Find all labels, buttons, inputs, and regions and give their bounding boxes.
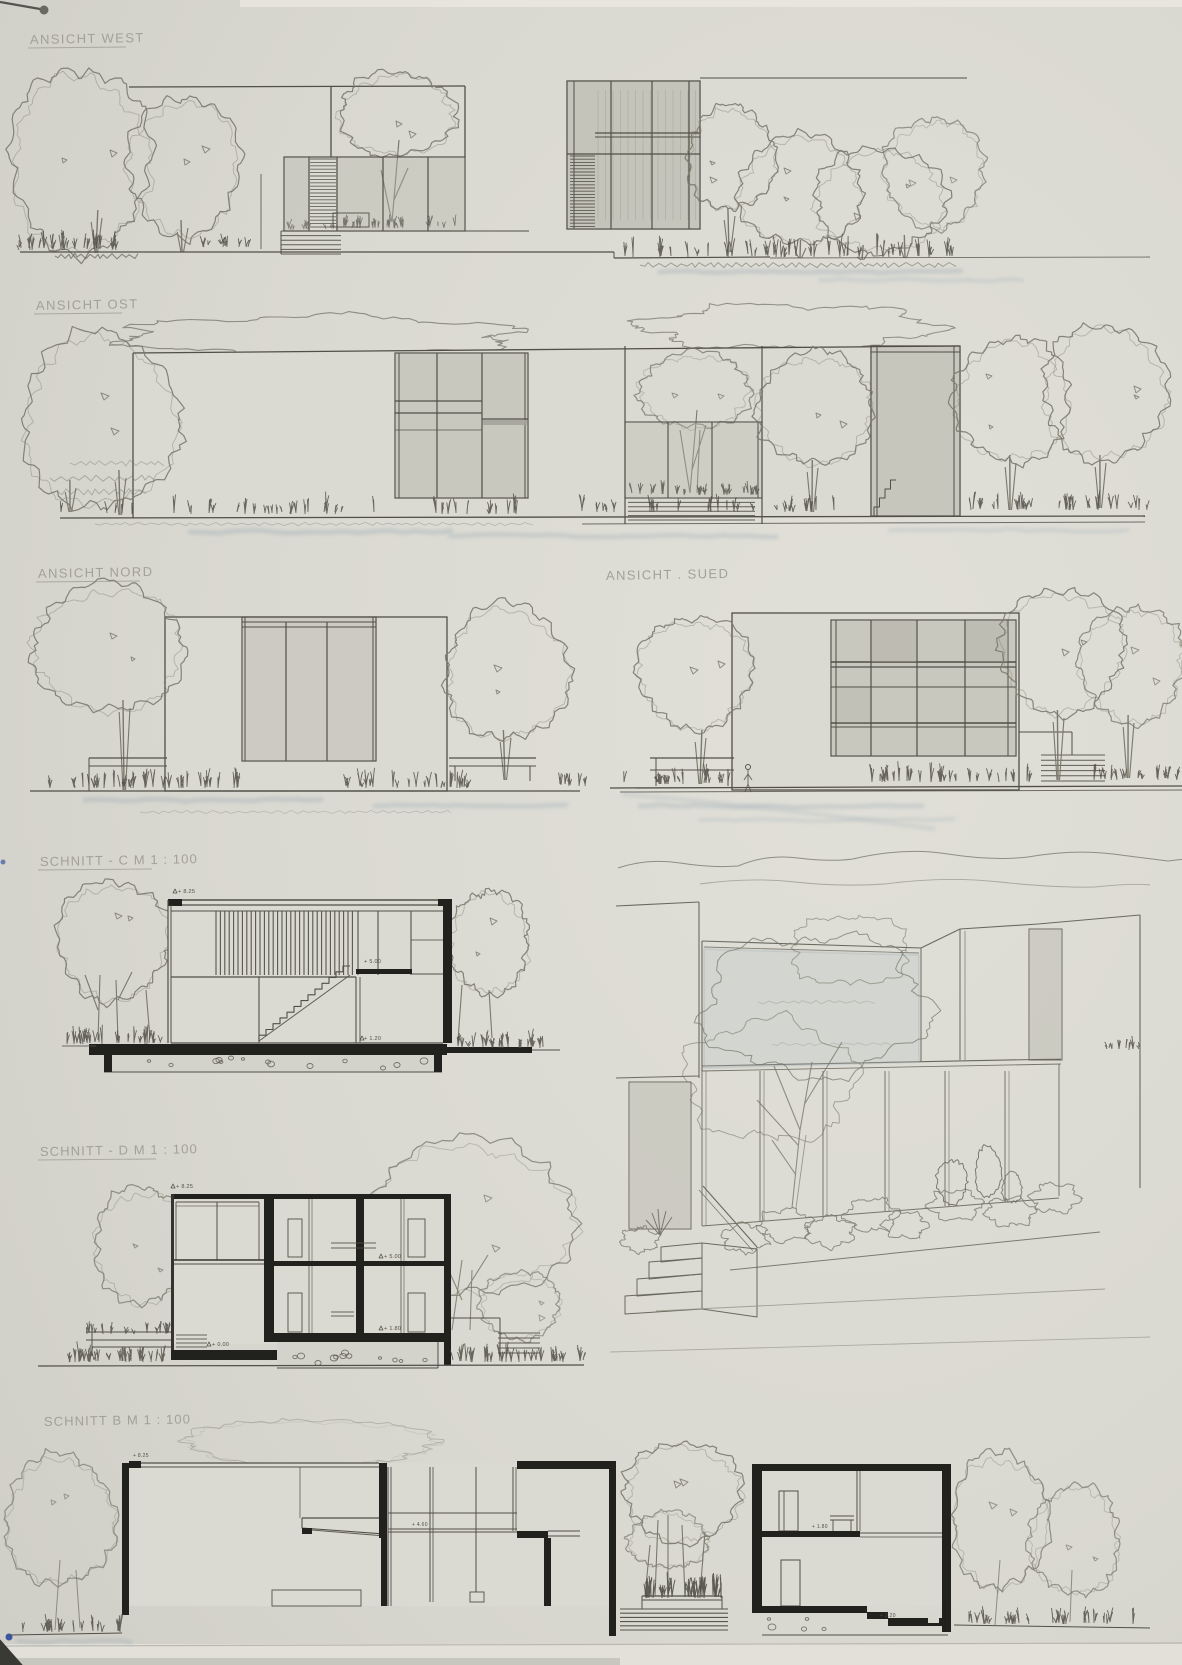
svg-text:SCHNITT - C M 1 : 100: SCHNITT - C M 1 : 100: [40, 851, 198, 869]
svg-text:+ 5.00: + 5.00: [384, 1254, 401, 1260]
svg-text:ANSICHT WEST: ANSICHT WEST: [30, 30, 145, 47]
svg-text:+ 4.60: + 4.60: [412, 1522, 428, 1528]
svg-text:+ 1.80: + 1.80: [812, 1524, 828, 1530]
svg-text:+ 5.00: + 5.00: [364, 959, 381, 965]
svg-text:SCHNITT - D M 1 : 100: SCHNITT - D M 1 : 100: [40, 1141, 198, 1159]
svg-text:+ 8.25: + 8.25: [178, 889, 195, 895]
svg-text:ANSICHT . SUED: ANSICHT . SUED: [606, 566, 730, 583]
svg-text:+ 8.25: + 8.25: [133, 1453, 149, 1459]
svg-text:+ 0.00: + 0.00: [212, 1342, 229, 1348]
svg-text:+ 1.80: + 1.80: [384, 1326, 401, 1332]
svg-text:+ 1.20: + 1.20: [364, 1036, 381, 1042]
svg-text:+ 8.25: + 8.25: [176, 1184, 193, 1190]
svg-text:+ 2.20: + 2.20: [880, 1613, 896, 1619]
svg-text:ANSICHT NORD: ANSICHT NORD: [38, 564, 154, 581]
svg-text:ANSICHT OST: ANSICHT OST: [36, 296, 139, 313]
svg-text:SCHNITT B M 1 : 100: SCHNITT B M 1 : 100: [44, 1411, 191, 1429]
